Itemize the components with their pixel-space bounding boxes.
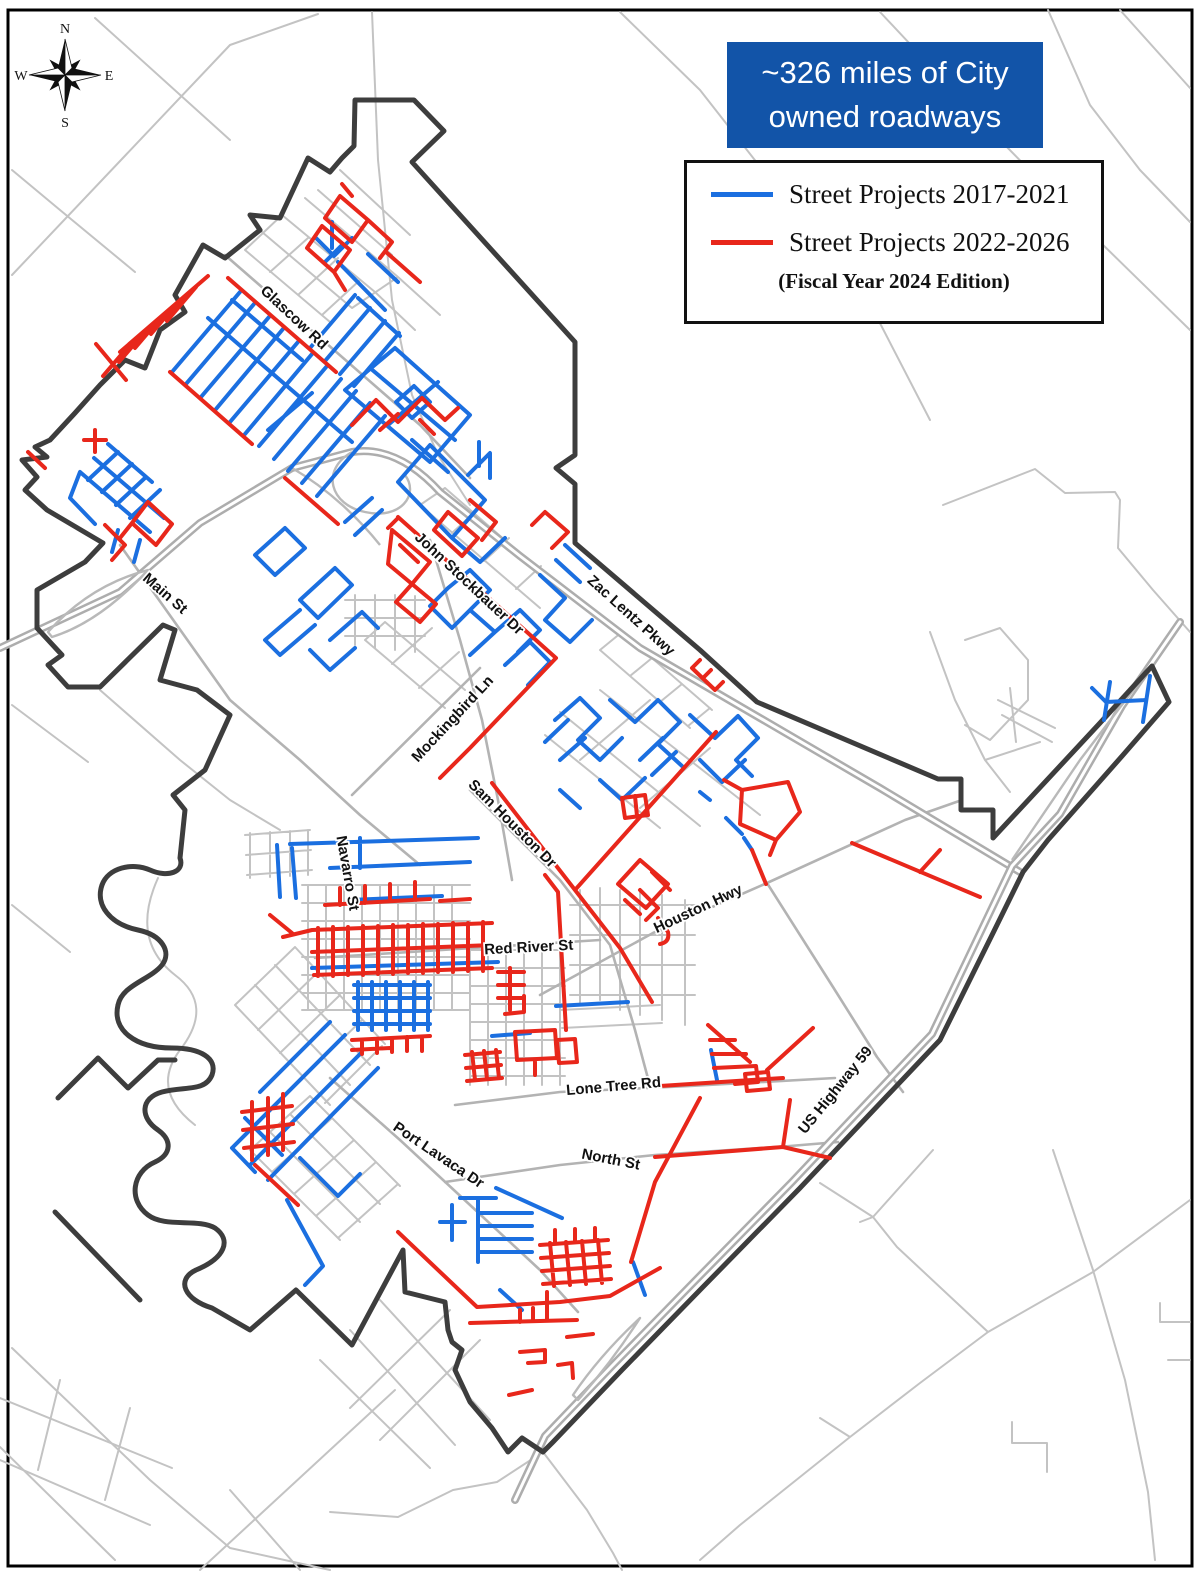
street-label-port-lavaca-dr: Port Lavaca Dr (390, 1119, 487, 1192)
city-street (245, 12, 470, 505)
street-label-navarro-st: Navarro St (332, 834, 362, 912)
rural-road (0, 705, 395, 1570)
map-title-line1: ~326 miles of City (761, 51, 1008, 95)
rural-road (943, 469, 1190, 632)
compass-east-label: E (105, 69, 114, 84)
street-label-sam-houston-dr: Sam Houston Dr (465, 776, 560, 871)
legend-item-2017-2021: Street Projects 2017-2021 (711, 177, 1101, 211)
rural-road (100, 690, 280, 1125)
legend-line-red (711, 240, 773, 245)
project-line-blue (354, 982, 430, 1030)
project-line-blue (310, 254, 400, 386)
street-label-north-st: North St (580, 1146, 641, 1174)
projects-2017-2021-layer (70, 222, 1150, 1310)
street-label-lone-tree-rd: Lone Tree Rd (566, 1074, 662, 1099)
rural-road (12, 14, 318, 275)
compass-rose: N E S W (14, 22, 113, 131)
compass-west-label: W (14, 69, 28, 84)
project-line-red (352, 1036, 430, 1054)
project-line-red (307, 184, 420, 290)
project-line-blue (545, 698, 758, 834)
legend-item-2022-2026: Street Projects 2022-2026 (711, 225, 1101, 259)
compass-star-highlight (29, 39, 101, 111)
project-line-red (724, 780, 800, 855)
project-line-red (655, 1025, 830, 1158)
rural-road (0, 1300, 622, 1570)
map-title: ~326 miles of City owned roadways (727, 42, 1043, 148)
rural-road (930, 628, 1055, 792)
compass-south-label: S (61, 116, 69, 131)
project-line-red (398, 1098, 700, 1307)
legend-label-2017-2021: Street Projects 2017-2021 (789, 179, 1069, 210)
street-labels-layer: Glascow Rd Main St John Stockbauer Dr Za… (139, 282, 876, 1192)
city-street (345, 488, 712, 728)
map-title-line2: owned roadways (769, 95, 1002, 139)
legend-line-blue (711, 192, 773, 197)
compass-north-label: N (60, 22, 70, 37)
legend-label-2022-2026: Street Projects 2022-2026 (789, 227, 1069, 258)
map-page: Glascow Rd Main St John Stockbauer Dr Za… (0, 0, 1200, 1572)
map-legend: Street Projects 2017-2021 Street Project… (684, 160, 1104, 324)
legend-note: (Fiscal Year 2024 Edition) (687, 269, 1101, 294)
